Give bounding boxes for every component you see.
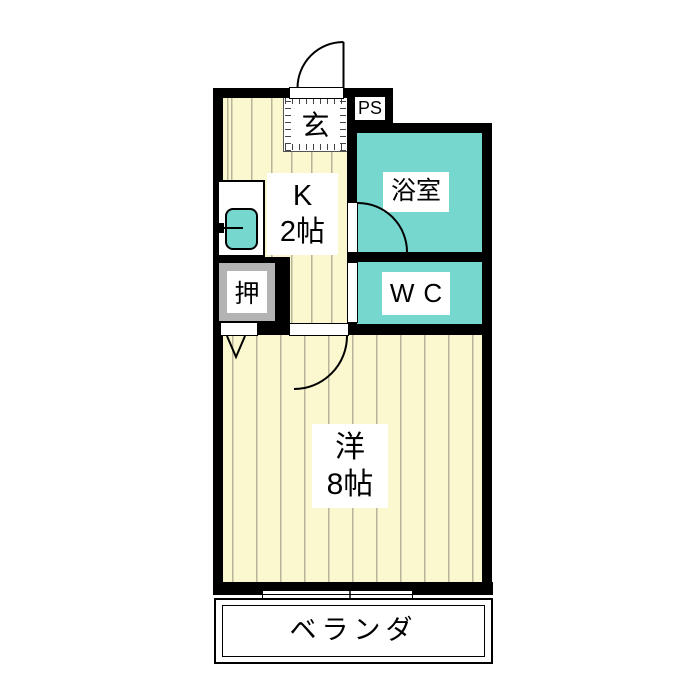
wc-label: WC xyxy=(382,272,450,315)
entrance-door-arc-icon xyxy=(298,42,344,88)
room-door-opening xyxy=(289,323,349,336)
main-room-label-line1: 洋 xyxy=(335,429,365,467)
closet-inner: 押 xyxy=(227,271,267,313)
kitchen-label: K 2帖 xyxy=(267,173,338,255)
main-room-label: 洋 8帖 xyxy=(312,424,388,508)
wall-bathroom-top xyxy=(347,123,492,133)
balcony: ベランダ xyxy=(214,598,493,664)
ps-box: PS xyxy=(352,94,388,123)
entrance-door-opening xyxy=(289,87,344,99)
kitchen-label-line1: K xyxy=(293,178,312,214)
bathroom-door-leaf xyxy=(347,202,358,253)
entrance-area: 玄 xyxy=(283,95,348,152)
entrance-label: 玄 xyxy=(284,100,347,151)
wall-left xyxy=(213,88,223,595)
closet-door-opening xyxy=(220,322,258,336)
floor-plan: ベランダ 玄 K 2帖 浴室 WC 洋 8帖 PS 押 xyxy=(0,0,700,700)
main-room-label-line2: 8帖 xyxy=(327,466,374,504)
wc-door-opening xyxy=(347,262,358,323)
balcony-label: ベランダ xyxy=(216,600,491,662)
kitchen-label-line2: 2帖 xyxy=(280,214,325,250)
wall-bathroom-wc-divider xyxy=(347,252,492,262)
sink-basin xyxy=(225,208,258,250)
closet-label: 押 xyxy=(234,274,259,310)
ps-label: PS xyxy=(358,98,382,119)
bathroom-label: 浴室 xyxy=(383,172,449,212)
window-slider xyxy=(262,590,413,599)
closet: 押 xyxy=(216,260,278,324)
wall-right xyxy=(482,123,492,595)
